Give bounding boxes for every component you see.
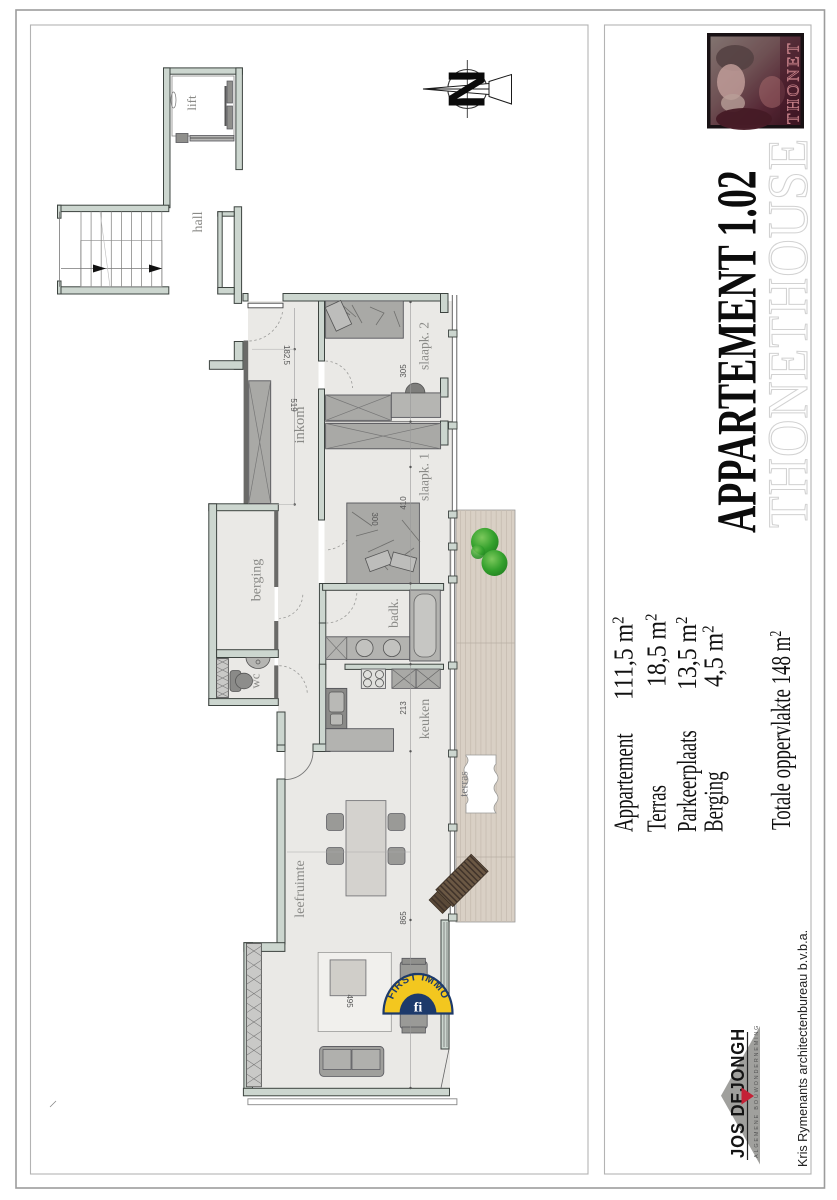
svg-text:keuken: keuken [418, 699, 433, 739]
svg-text:300: 300 [370, 512, 379, 526]
svg-text:865: 865 [399, 911, 408, 925]
svg-text:inkom: inkom [292, 406, 308, 444]
svg-text:leefruimte: leefruimte [293, 860, 308, 918]
svg-text:hall: hall [191, 211, 206, 232]
svg-text:410: 410 [399, 496, 408, 510]
svg-text:fi: fi [414, 1001, 423, 1016]
svg-text:THONET: THONET [784, 41, 803, 124]
svg-text:APPARTEMENT 1.02: APPARTEMENT 1.02 [706, 170, 768, 533]
svg-text:wc: wc [248, 673, 263, 688]
svg-text:495: 495 [345, 994, 354, 1008]
svg-text:305: 305 [399, 364, 408, 378]
svg-text:terras: terras [459, 771, 471, 797]
svg-text:4,5 m2: 4,5 m2 [698, 625, 729, 687]
svg-text:ALGEMENE BOUWONDERNEMING: ALGEMENE BOUWONDERNEMING [754, 1024, 760, 1158]
svg-text:Totale oppervlakte 148 m2: Totale oppervlakte 148 m2 [767, 631, 797, 830]
svg-text:18,5 m2: 18,5 m2 [641, 614, 672, 687]
svg-text:slaapk. 1: slaapk. 1 [417, 453, 432, 501]
svg-text:slaapk. 2: slaapk. 2 [417, 322, 432, 370]
svg-text:Terras: Terras [642, 785, 672, 832]
svg-text:N: N [438, 69, 496, 110]
svg-text:213: 213 [399, 701, 408, 715]
svg-text:berging: berging [250, 559, 265, 602]
svg-text:Kris Rymenants architectenbure: Kris Rymenants architectenbureau b.v.b.a… [796, 930, 810, 1167]
svg-text:lift: lift [184, 95, 199, 111]
svg-text:badk.: badk. [386, 598, 401, 628]
svg-text:Appartement: Appartement [609, 733, 639, 832]
svg-text:111,5 m2: 111,5 m2 [608, 616, 639, 700]
svg-text:182,5: 182,5 [282, 345, 291, 366]
svg-text:Berging: Berging [699, 771, 729, 832]
